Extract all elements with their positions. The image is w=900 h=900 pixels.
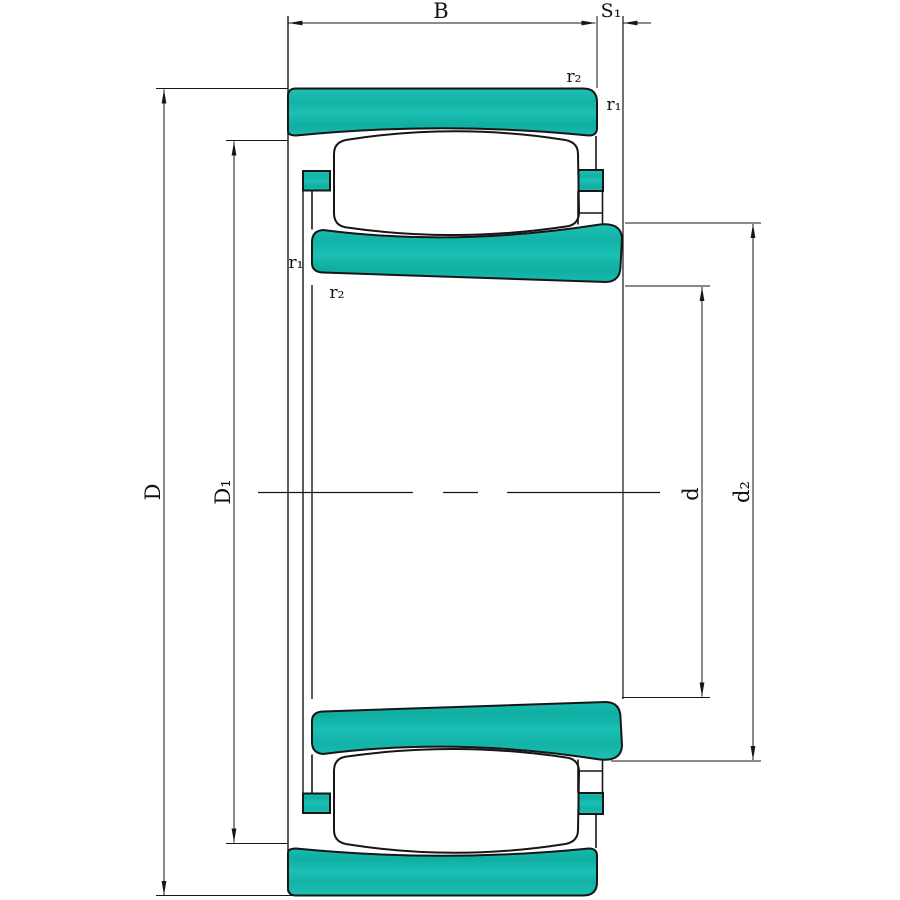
label-r2-left: r₂ — [330, 283, 345, 303]
label-d2: d₂ — [730, 481, 754, 503]
label-r2-top-right: r₂ — [567, 67, 582, 87]
label-D: D — [141, 484, 165, 501]
label-d: d — [679, 487, 703, 500]
outer-ring-top-section — [288, 89, 597, 136]
label-r1-left: r₁ — [289, 253, 304, 273]
bearing-cross-section-diagram: B S₁ r₂ r₁ r₁ r₂ D D₁ d d₂ — [0, 0, 900, 900]
label-S1: S₁ — [601, 0, 622, 22]
cage-bar-top-left — [303, 171, 330, 191]
roller-top — [334, 131, 579, 235]
bearing-drawing-canvas: B S₁ r₂ r₁ r₁ r₂ D D₁ d d₂ — [0, 0, 900, 900]
label-D1: D₁ — [211, 479, 235, 504]
label-B: B — [433, 0, 448, 23]
label-r1-top-right: r₁ — [607, 95, 622, 115]
bottom-half-mirror — [288, 702, 622, 896]
cage-bar-top-right — [579, 170, 604, 191]
